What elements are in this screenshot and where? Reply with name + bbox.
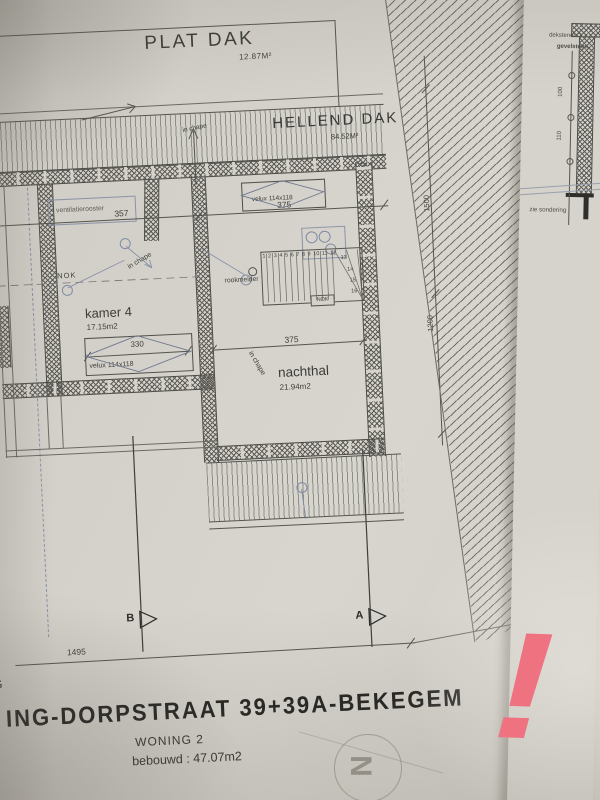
zie-sondering-label: zie sondering xyxy=(529,206,566,214)
detail-dim-dot-2 xyxy=(567,114,574,121)
north-label: N xyxy=(343,755,377,777)
detail-dim-100: 100 xyxy=(558,87,564,97)
detail-footing-line-h xyxy=(566,193,594,198)
detail-dim-dot-1 xyxy=(568,72,575,79)
arrows xyxy=(81,101,200,190)
detail-dim-110: 110 xyxy=(557,131,563,141)
floorplan-photo: PLAT DAK 12.87M² HELLEND DAK 84.52M² xyxy=(0,0,600,800)
dimension-lines xyxy=(0,56,456,668)
detail-coping-cap xyxy=(571,23,600,38)
stair-treads xyxy=(266,249,362,303)
title-partial-letter: G xyxy=(0,676,3,691)
exclamation-watermark: ! xyxy=(490,609,556,763)
detail-dim-dot-3 xyxy=(566,158,573,165)
construction-lines xyxy=(0,0,571,664)
detail-footing-line-v xyxy=(583,193,589,219)
section-cut-lines xyxy=(133,425,372,658)
leader-lines xyxy=(66,238,306,529)
detail-wall-column xyxy=(576,37,595,193)
nok-ridge-dashed-line xyxy=(0,277,197,286)
